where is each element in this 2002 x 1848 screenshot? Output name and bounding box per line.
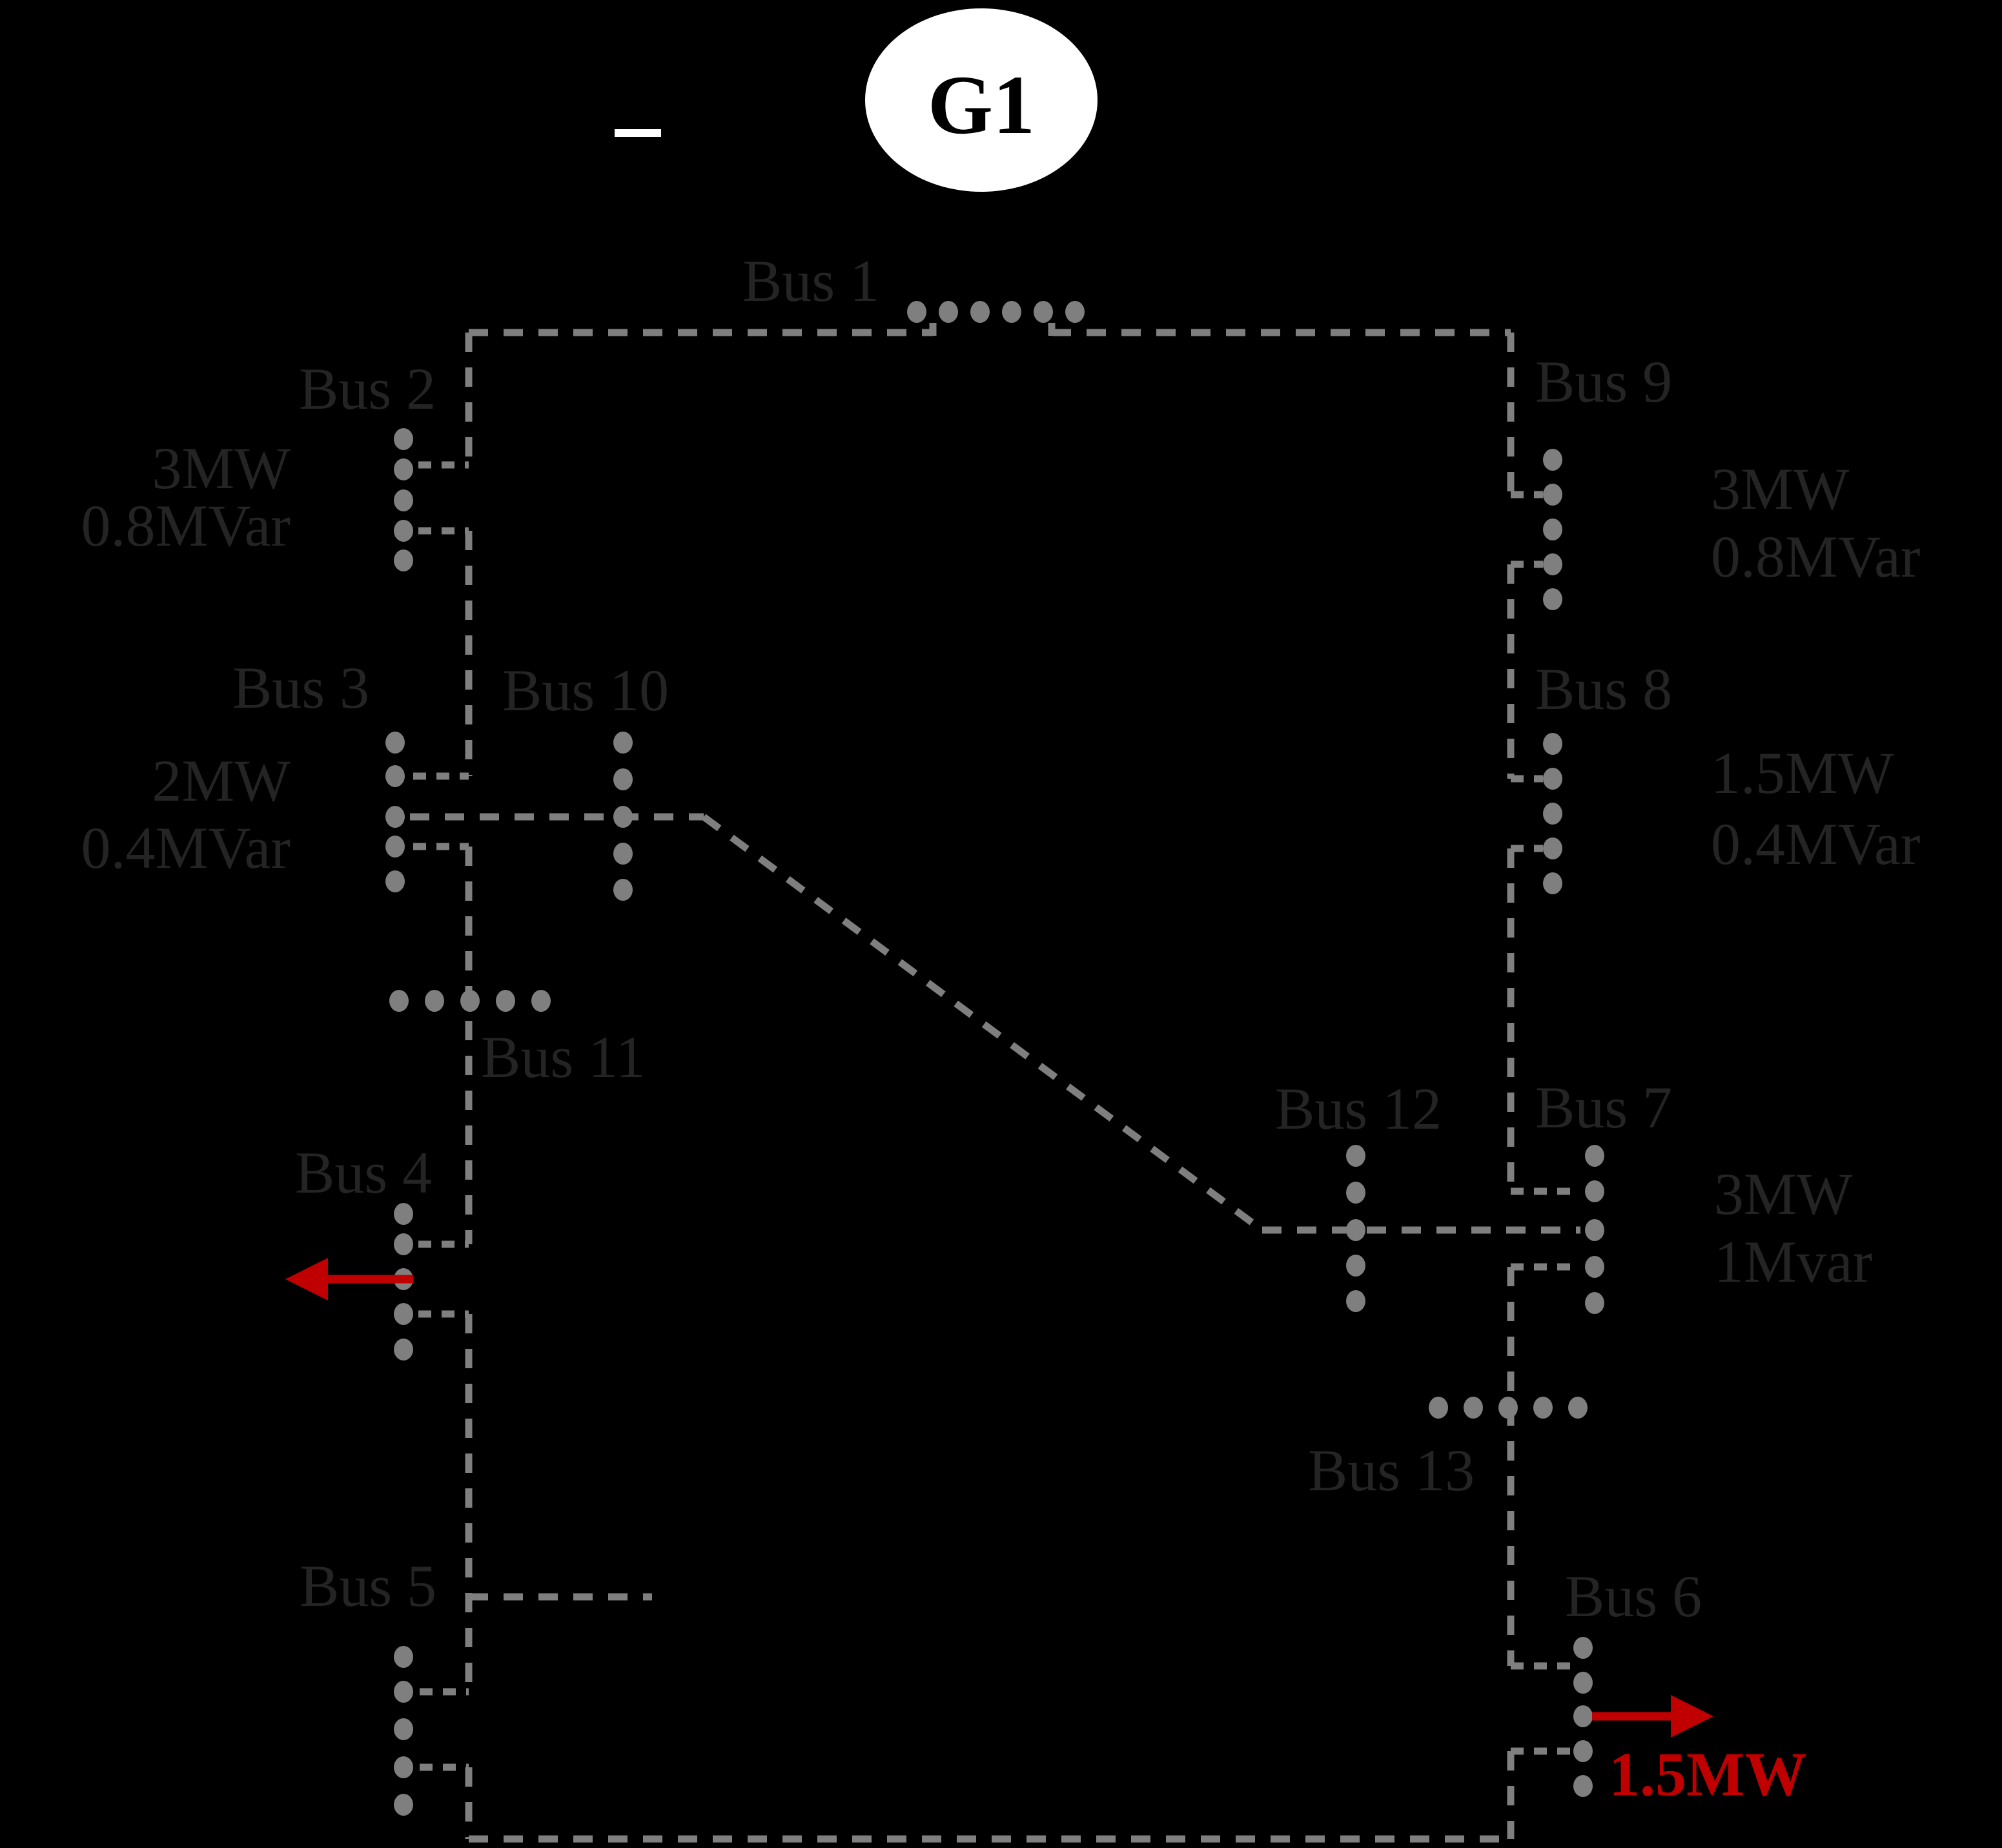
bus7-load-q: 1Mvar (1714, 1229, 1872, 1295)
bus-8-label: Bus 8 (1535, 656, 1672, 722)
bus-5-label: Bus 5 (300, 1553, 436, 1619)
bus-10-label: Bus 10 (502, 657, 669, 723)
bus-5-busbar (394, 1646, 413, 1816)
bus8-load-q: 0.4MVar (1711, 811, 1921, 877)
bus-13-label: Bus 13 (1308, 1437, 1475, 1503)
bus-1-busbar (907, 301, 1085, 323)
bus-6-busbar (1573, 1637, 1593, 1797)
bus-9-label: Bus 9 (1535, 349, 1672, 415)
bus3-load-q: 0.4MVar (81, 815, 291, 881)
bus-3-busbar (385, 732, 405, 892)
load-arrow-bus4 (285, 1258, 413, 1300)
bus2-load-p: 3MW (152, 435, 291, 501)
generator-g1: G1 (865, 8, 1098, 192)
bus-3-label: Bus 3 (232, 655, 369, 721)
bus-9-busbar (1543, 449, 1562, 610)
bus-12-label: Bus 12 (1275, 1076, 1442, 1142)
bus-7-busbar (1585, 1145, 1604, 1314)
bus3-load-p: 2MW (152, 748, 291, 814)
bus-12-busbar (1346, 1145, 1365, 1312)
diagram-canvas: G1 1.5MW Bus 1 Bus 2 Bus 3 Bus 4 Bus 5 B… (0, 0, 2002, 1848)
bus-7-label: Bus 7 (1535, 1074, 1672, 1140)
bus-8-busbar (1543, 733, 1562, 894)
bus8-load-p: 1.5MW (1711, 740, 1894, 806)
bus-11-label: Bus 11 (481, 1024, 646, 1090)
bus9-load-p: 3MW (1711, 456, 1850, 522)
bus2-load-q: 0.8MVar (81, 493, 291, 559)
bus6-load-value: 1.5MW (1609, 1740, 1807, 1809)
bus-2-busbar (394, 428, 413, 571)
bus-1-label: Bus 1 (742, 248, 879, 314)
bus7-load-p: 3MW (1714, 1161, 1853, 1227)
bus-6-label: Bus 6 (1565, 1563, 1702, 1629)
bus-4-label: Bus 4 (295, 1140, 432, 1206)
bus4-load-arrow-left-icon (285, 1258, 328, 1300)
generator-label: G1 (928, 59, 1035, 152)
bus9-load-q: 0.8MVar (1711, 524, 1921, 590)
line-diagonal (704, 817, 1262, 1230)
bus-labels: Bus 1 Bus 2 Bus 3 Bus 4 Bus 5 Bus 6 Bus … (232, 248, 1702, 1629)
bus-2-label: Bus 2 (299, 356, 436, 422)
white-dash-artifact (615, 129, 661, 137)
load-arrow-bus6 (1592, 1695, 1713, 1738)
bus-10-busbar (613, 732, 633, 901)
bus-11-busbar (389, 990, 551, 1012)
bus6-load-arrow-right-icon (1671, 1695, 1713, 1738)
bus-13-busbar (1429, 1397, 1588, 1419)
